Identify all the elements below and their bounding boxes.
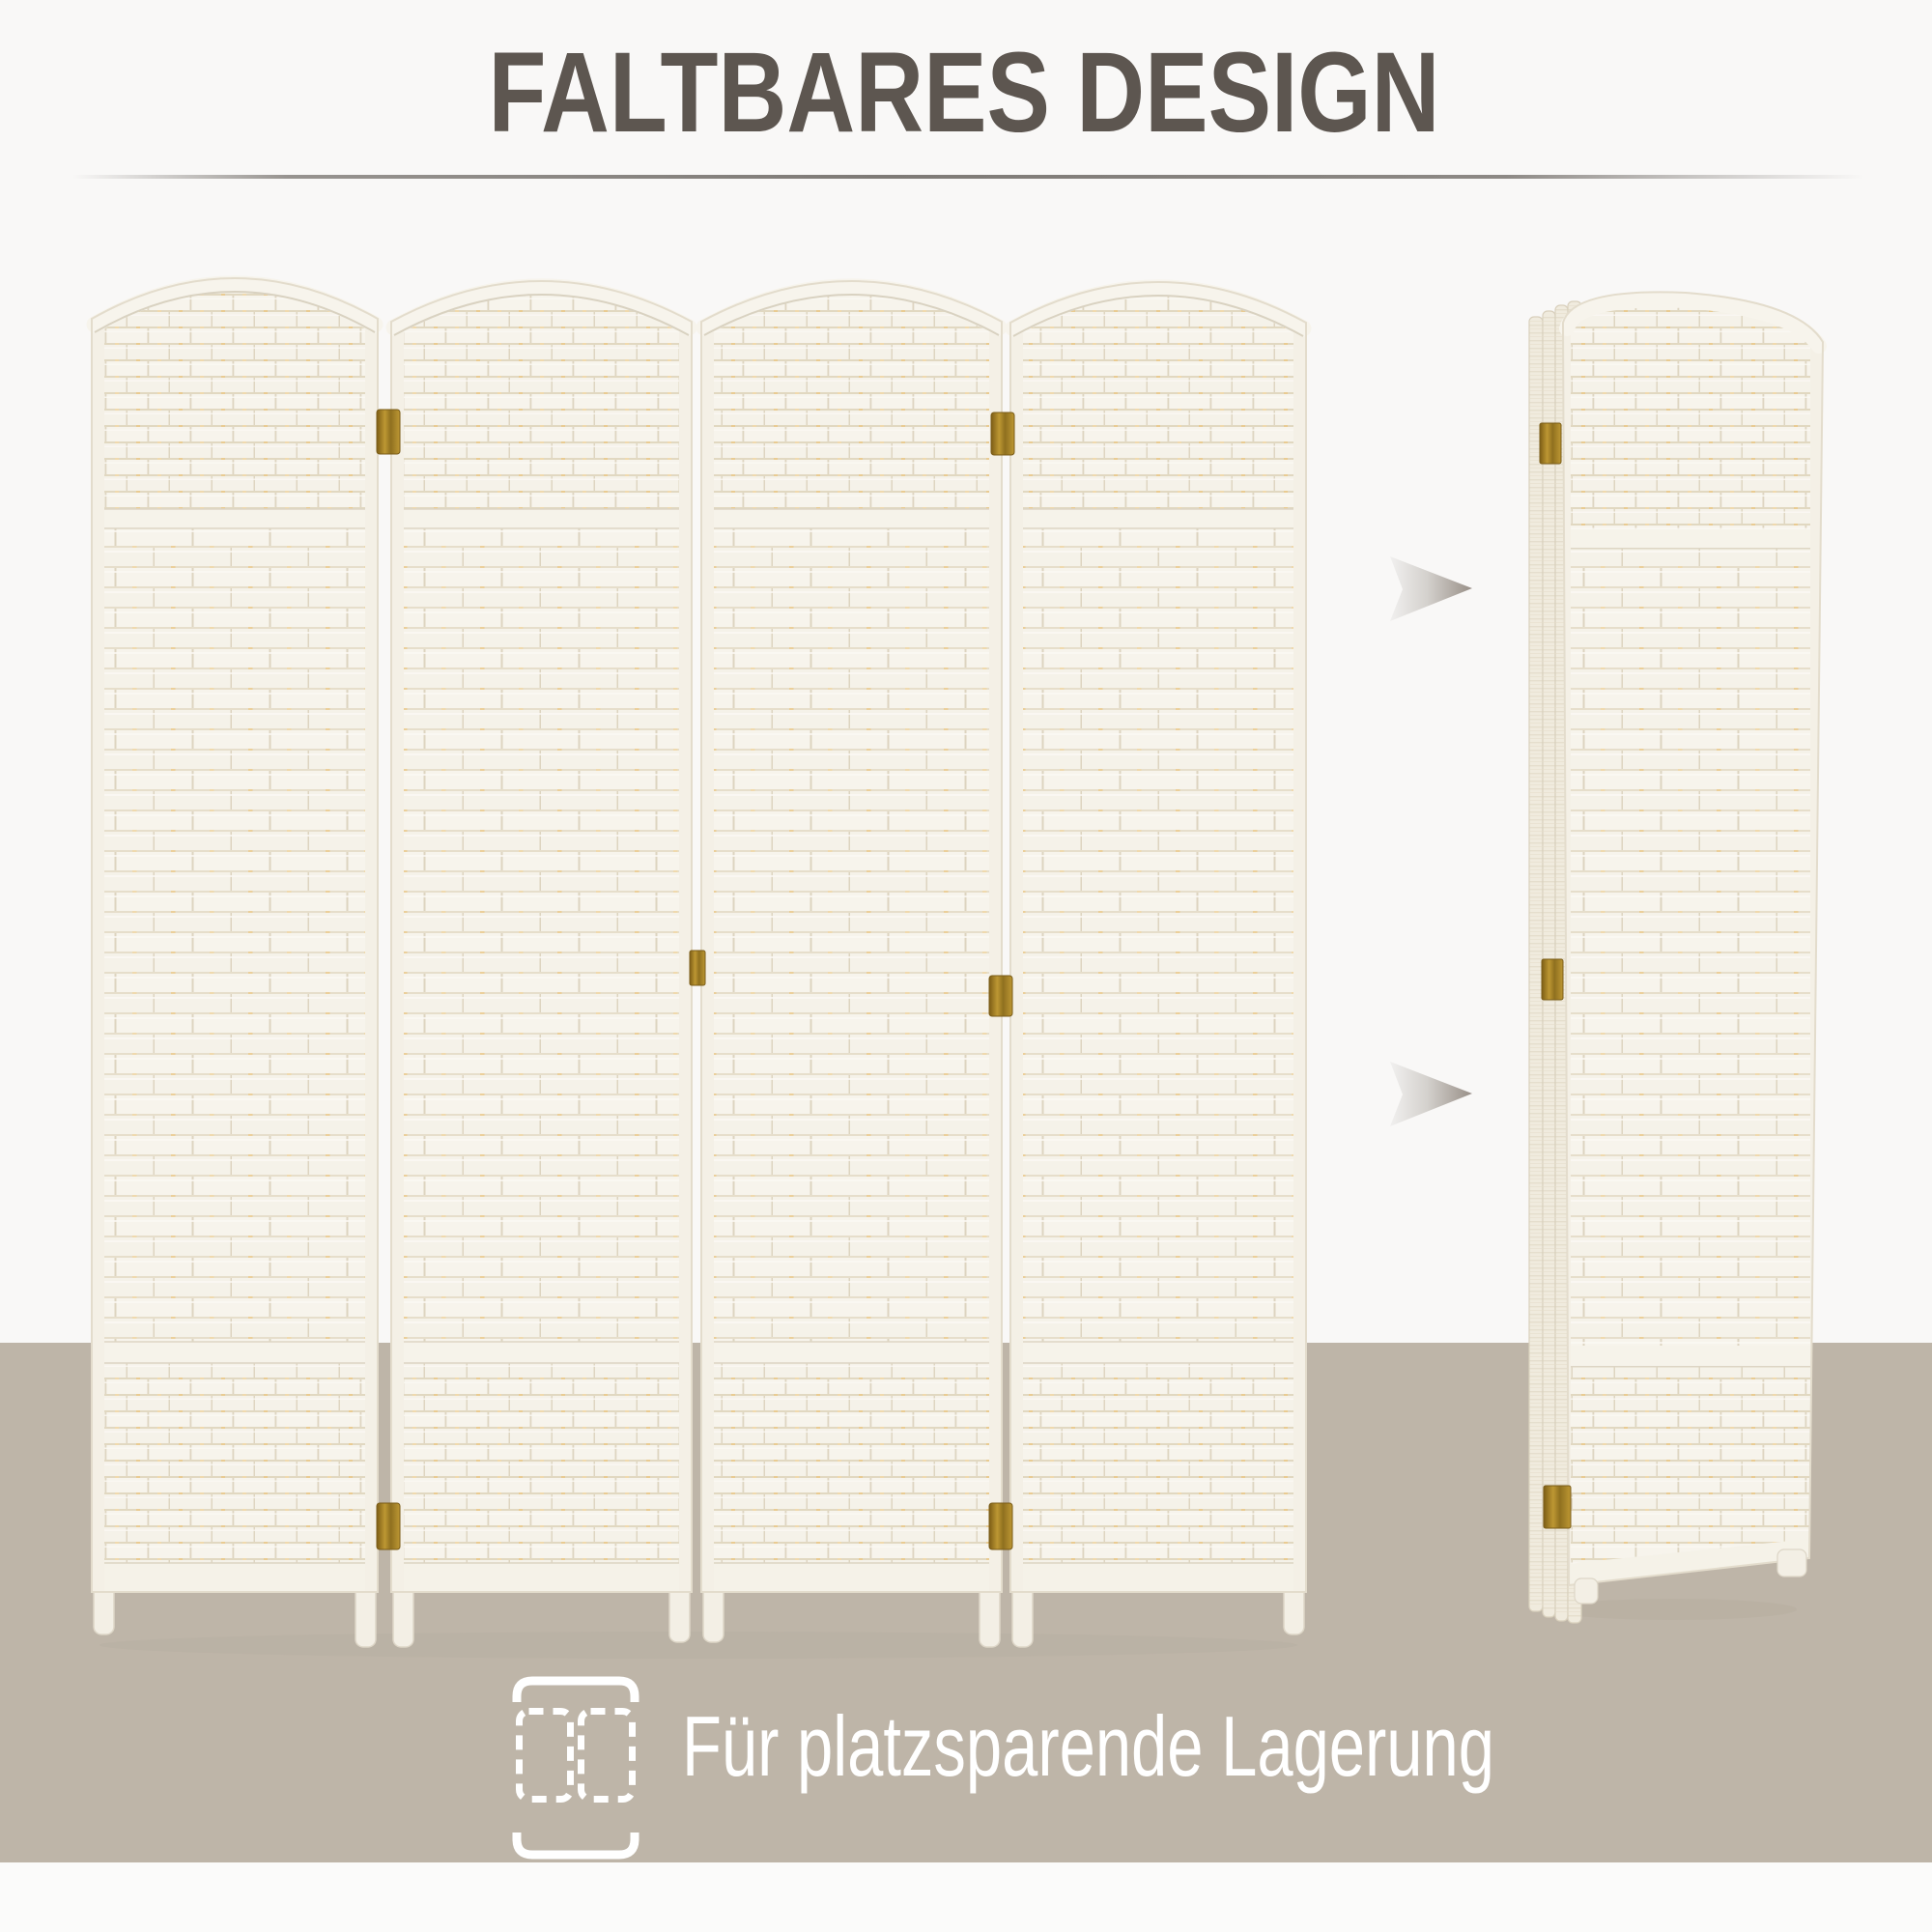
svg-text:Für platzsparende Lagerung: Für platzsparende Lagerung (682, 1698, 1494, 1794)
svg-text:FALTBARES DESIGN: FALTBARES DESIGN (489, 29, 1440, 156)
